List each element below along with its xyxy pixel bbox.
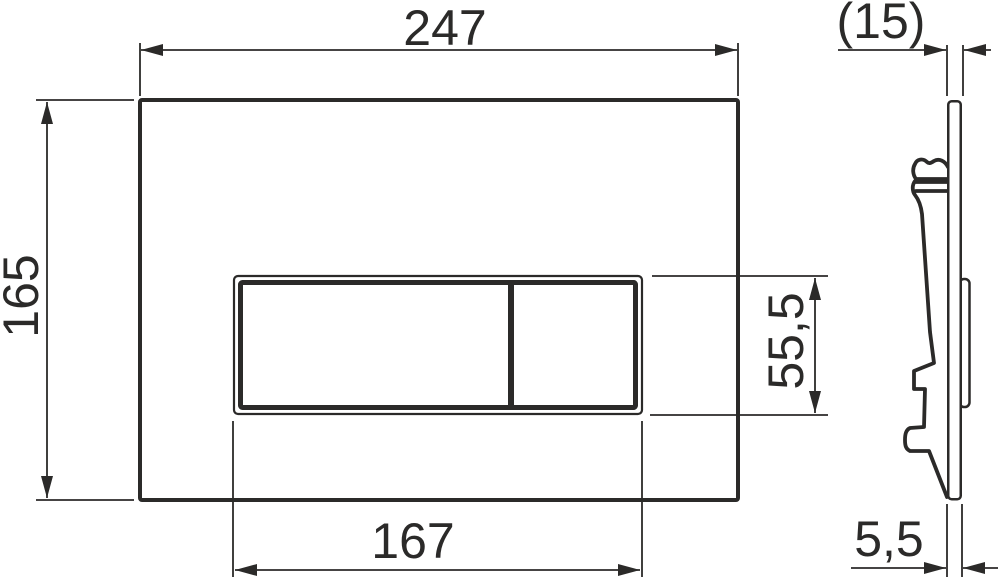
- dim-thickness-label: 5,5: [854, 511, 924, 567]
- arrow-left-icon: [963, 562, 985, 574]
- arrow-right-icon: [924, 44, 946, 56]
- dim-plate-width: 247: [140, 0, 738, 96]
- arrow-up-icon: [41, 102, 53, 124]
- arrow-right-icon: [715, 44, 737, 56]
- dim-button-width-label: 167: [371, 513, 454, 569]
- dim-depth-label: (15): [837, 0, 926, 49]
- side-view: [905, 101, 970, 499]
- small-flush-button-area: [517, 285, 631, 405]
- technical-drawing-canvas: 247 165 167 55,5 (15): [0, 0, 1000, 579]
- side-plate-panel: [948, 101, 961, 499]
- large-flush-button-area: [243, 285, 506, 405]
- dim-button-height-label: 55,5: [758, 292, 814, 389]
- side-mechanism-profile: [905, 160, 948, 497]
- arrow-left-icon: [141, 44, 163, 56]
- arrow-right-icon: [618, 564, 640, 576]
- arrow-left-icon: [964, 44, 986, 56]
- flush-plate-dimension-drawing: 247 165 167 55,5 (15): [0, 0, 1000, 579]
- arrow-right-icon: [924, 562, 946, 574]
- arrow-left-icon: [235, 564, 257, 576]
- front-view: [140, 100, 738, 500]
- dim-plate-width-label: 247: [403, 0, 486, 56]
- arrow-down-icon: [809, 391, 821, 413]
- dim-plate-height: 165: [0, 100, 134, 500]
- dim-depth: (15): [837, 0, 991, 96]
- dim-plate-height-label: 165: [0, 254, 49, 337]
- arrow-down-icon: [41, 476, 53, 498]
- dim-thickness: 5,5: [851, 504, 998, 577]
